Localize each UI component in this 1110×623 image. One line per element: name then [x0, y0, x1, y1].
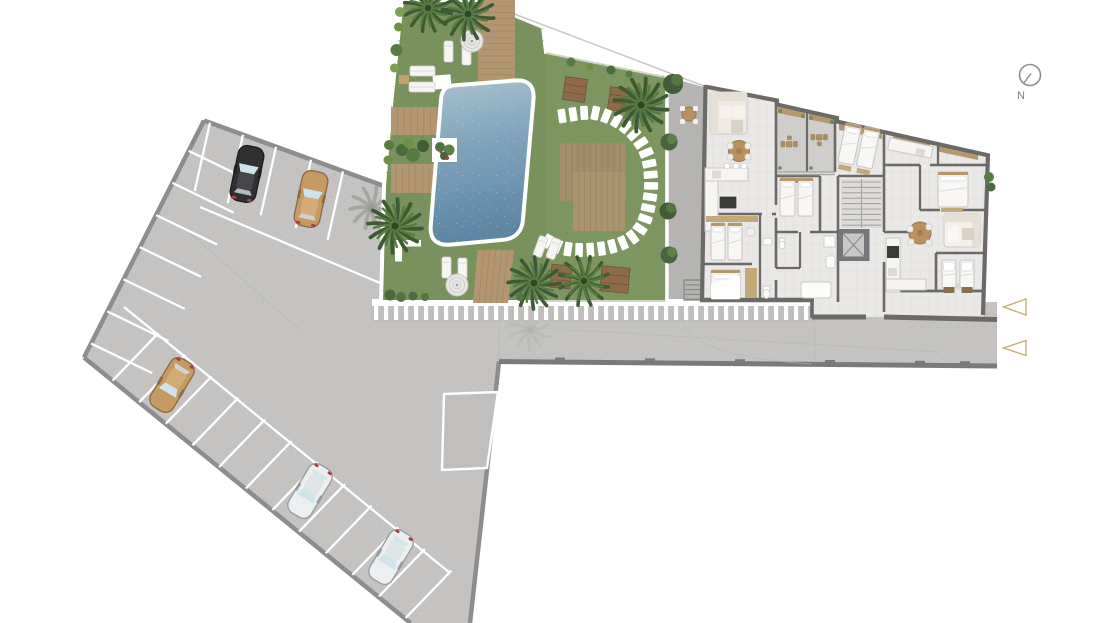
svg-text:N: N: [1017, 90, 1025, 102]
